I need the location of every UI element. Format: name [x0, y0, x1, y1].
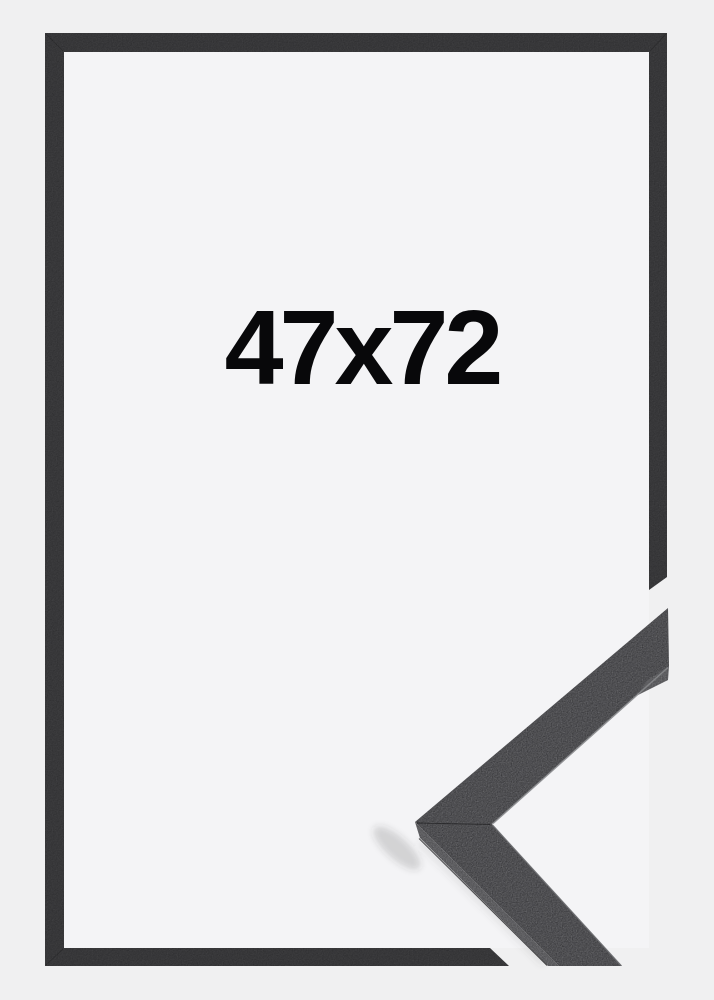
frame-illustration	[0, 0, 714, 1000]
product-image: 47x72	[0, 0, 714, 1000]
paper-area	[64, 52, 649, 948]
size-label: 47x72	[5, 295, 714, 401]
